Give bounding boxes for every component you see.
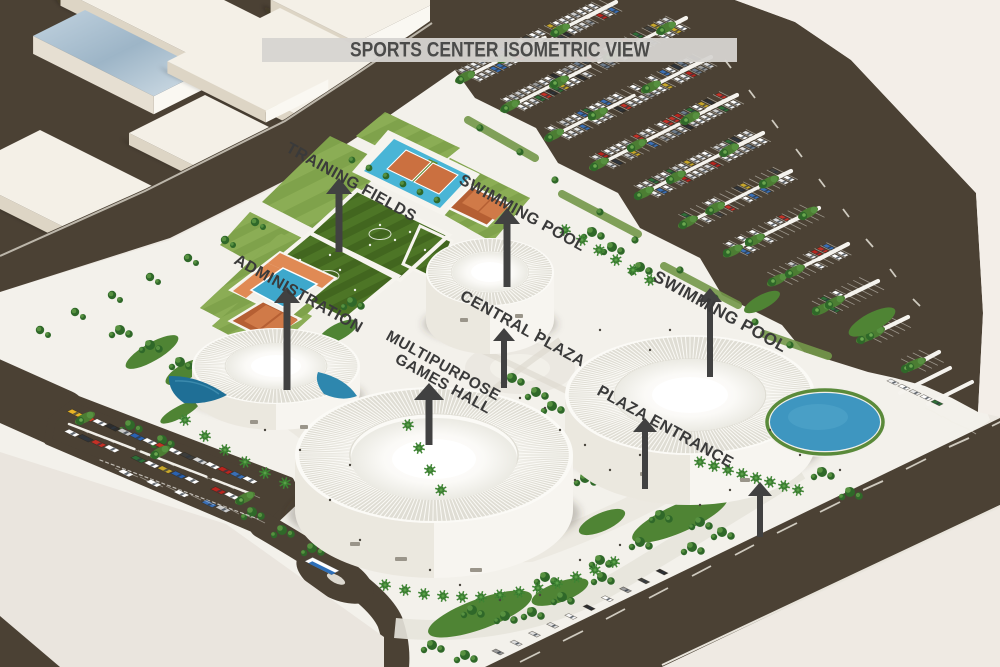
svg-text:SPORTS CENTER ISOMETRIC VIEW: SPORTS CENTER ISOMETRIC VIEW: [350, 38, 651, 62]
